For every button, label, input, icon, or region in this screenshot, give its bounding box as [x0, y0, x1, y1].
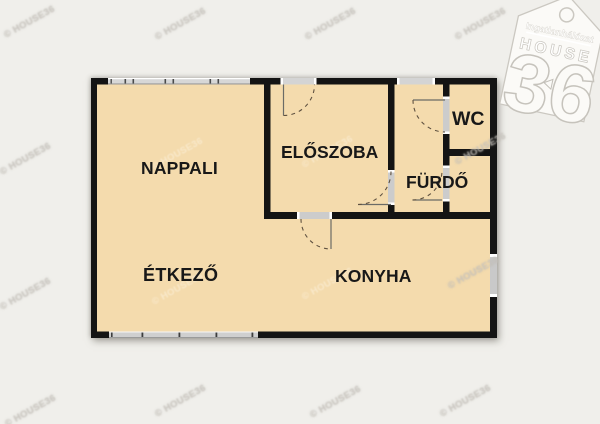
svg-text:36: 36	[496, 35, 600, 143]
